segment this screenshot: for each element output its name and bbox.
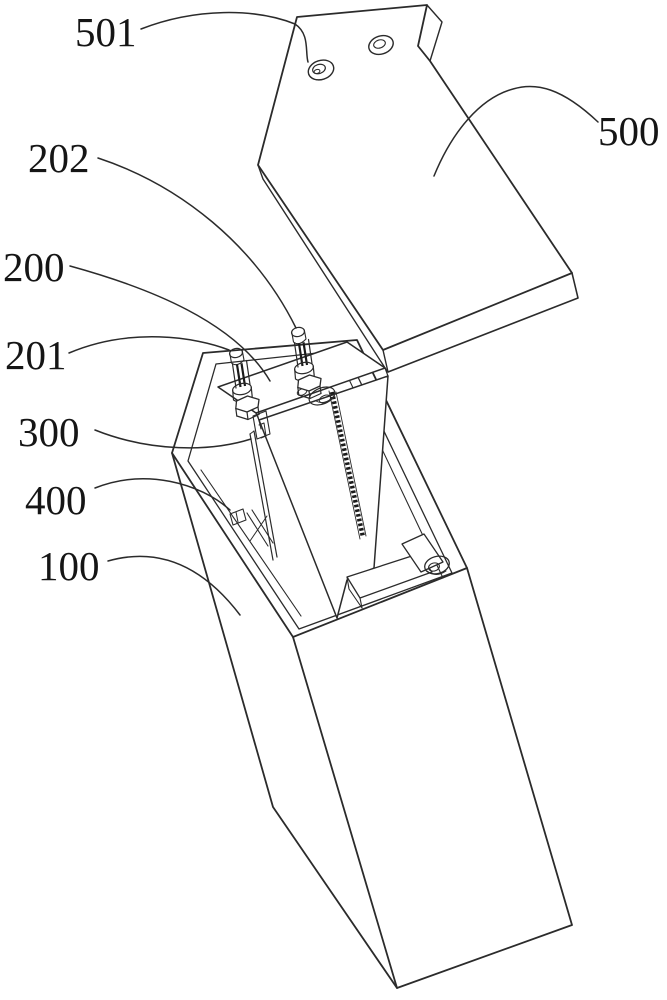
label-201: 201 <box>5 332 67 378</box>
label-501: 501 <box>75 9 137 55</box>
cover-lid-500 <box>258 5 578 372</box>
figure-canvas: 501 500 202 200 201 300 400 100 <box>0 0 667 1000</box>
leader-501 <box>141 13 308 62</box>
label-200: 200 <box>3 244 65 290</box>
label-202: 202 <box>28 135 90 181</box>
patent-drawing-svg: 501 500 202 200 201 300 400 100 <box>0 0 667 1000</box>
label-100: 100 <box>38 543 100 589</box>
lid-top-face <box>258 5 572 350</box>
label-500: 500 <box>598 108 660 154</box>
lid-corner-flap <box>427 5 442 61</box>
leader-201 <box>69 337 229 353</box>
label-300: 300 <box>18 409 80 455</box>
label-400: 400 <box>25 477 87 523</box>
